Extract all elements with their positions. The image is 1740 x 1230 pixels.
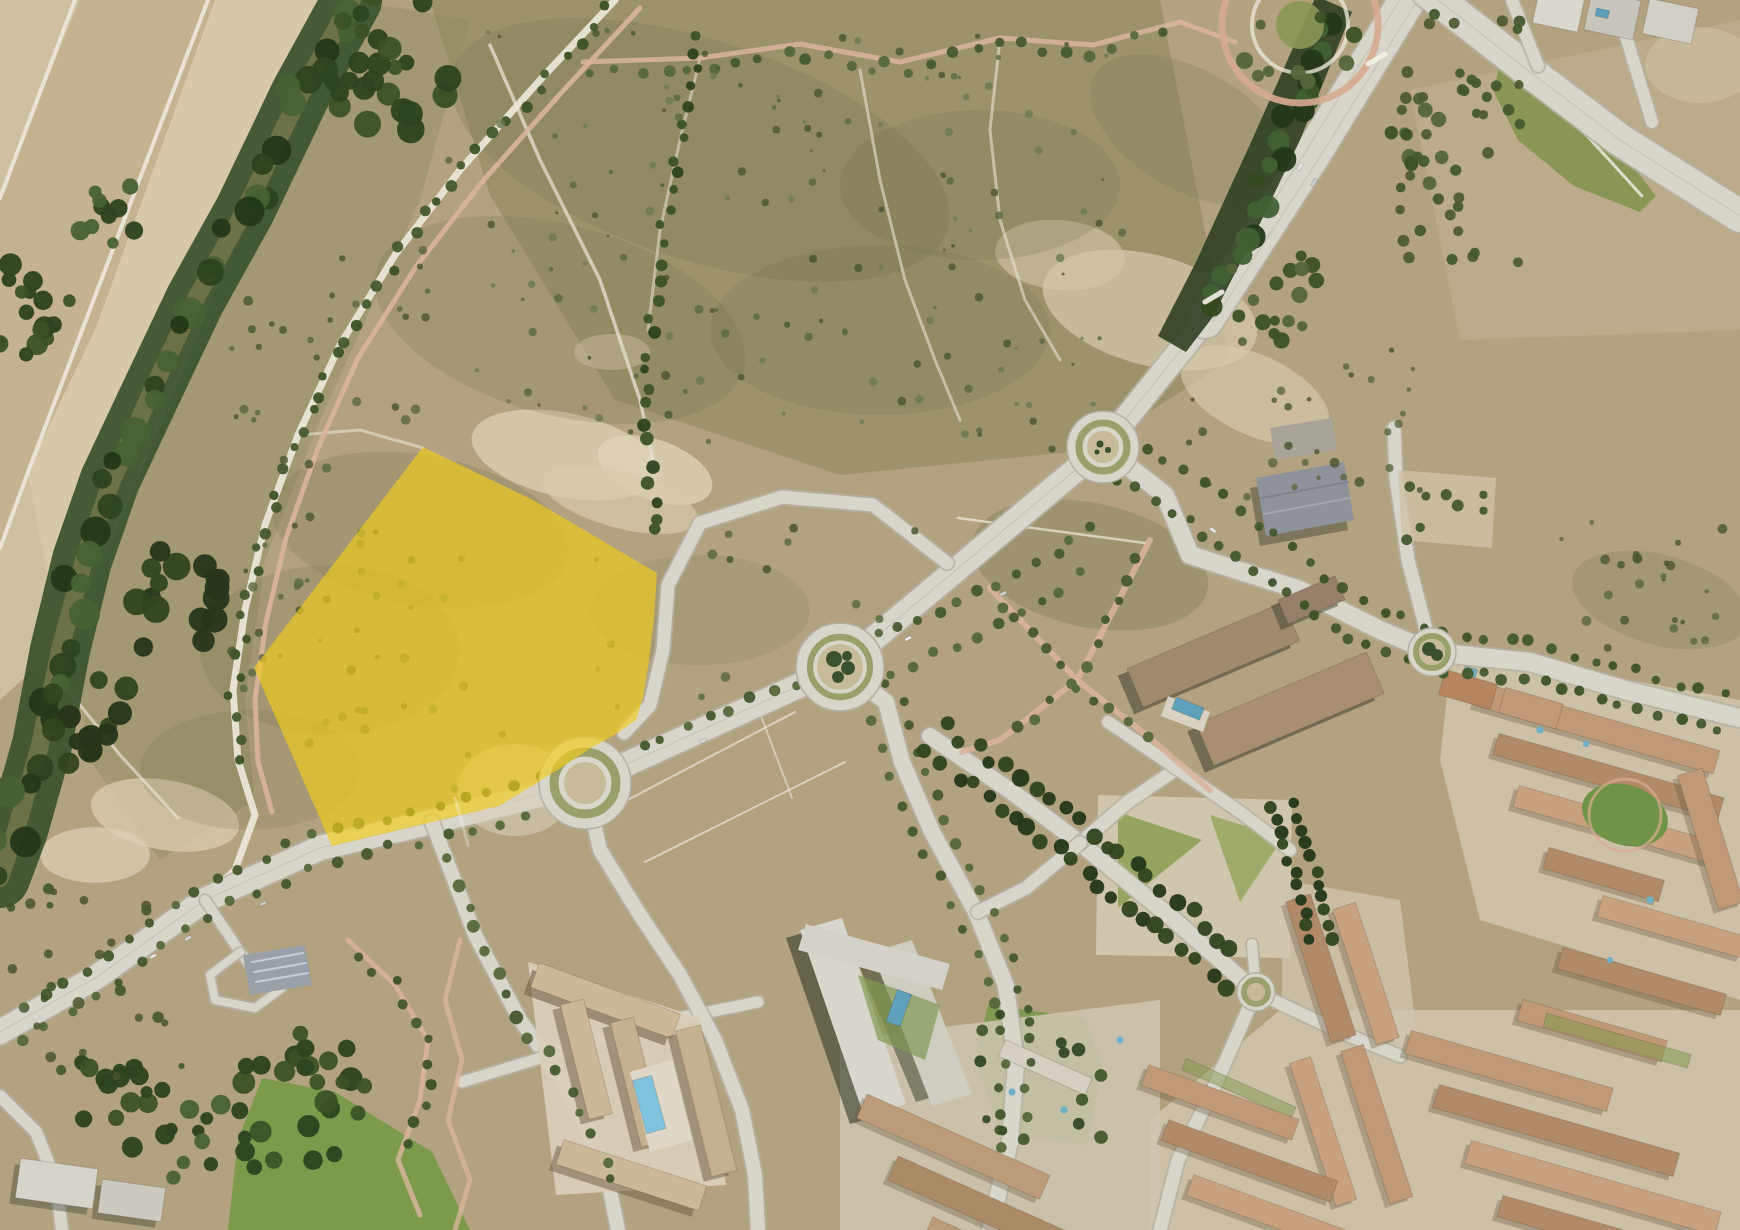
pool (1607, 957, 1613, 963)
round-park-center (1276, 1, 1324, 49)
pool (1061, 1107, 1068, 1114)
pool (1537, 727, 1544, 734)
pool (1583, 741, 1589, 747)
pool (1117, 1037, 1124, 1044)
roundabout-4 (1408, 628, 1456, 676)
pool (1647, 897, 1654, 904)
pale-patch (40, 827, 150, 883)
roundabout-5 (1237, 973, 1275, 1011)
mottle (710, 245, 1050, 415)
satellite-map-viewport (0, 0, 1740, 1230)
roundabout-3 (1067, 411, 1139, 483)
aerial-imagery (0, 0, 1740, 1230)
roundabout-2 (796, 623, 884, 711)
pool (1009, 1089, 1016, 1096)
